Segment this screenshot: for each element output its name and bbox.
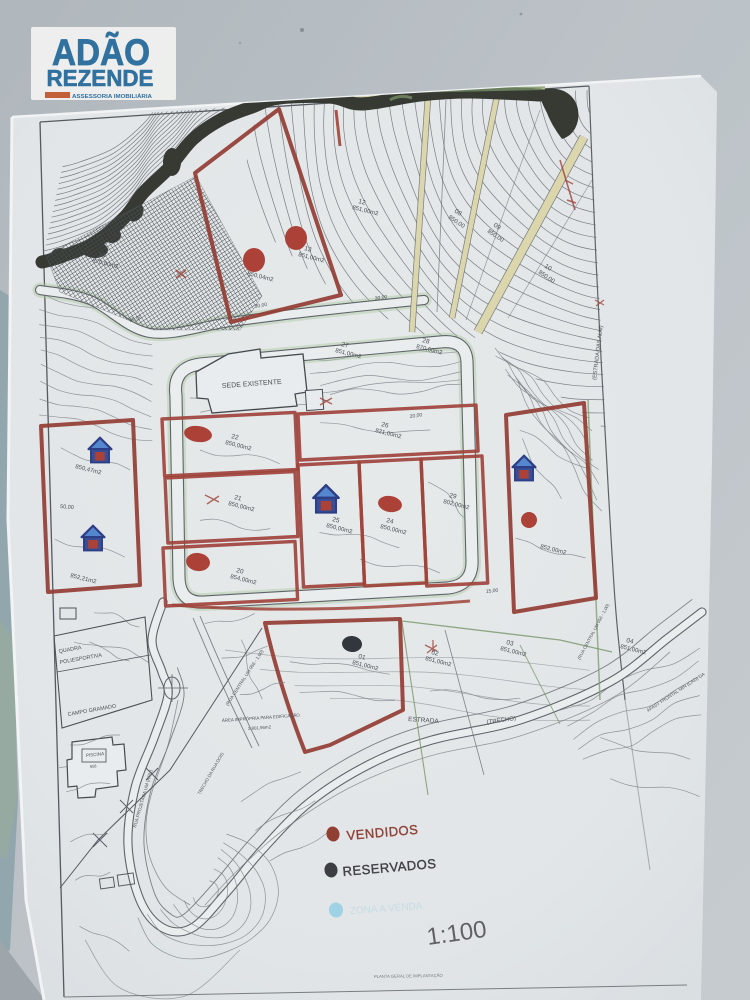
svg-text:REZENDE: REZENDE xyxy=(47,65,154,91)
svg-text:ASSESSORIA IMOBILIÁRIA: ASSESSORIA IMOBILIÁRIA xyxy=(72,93,152,100)
